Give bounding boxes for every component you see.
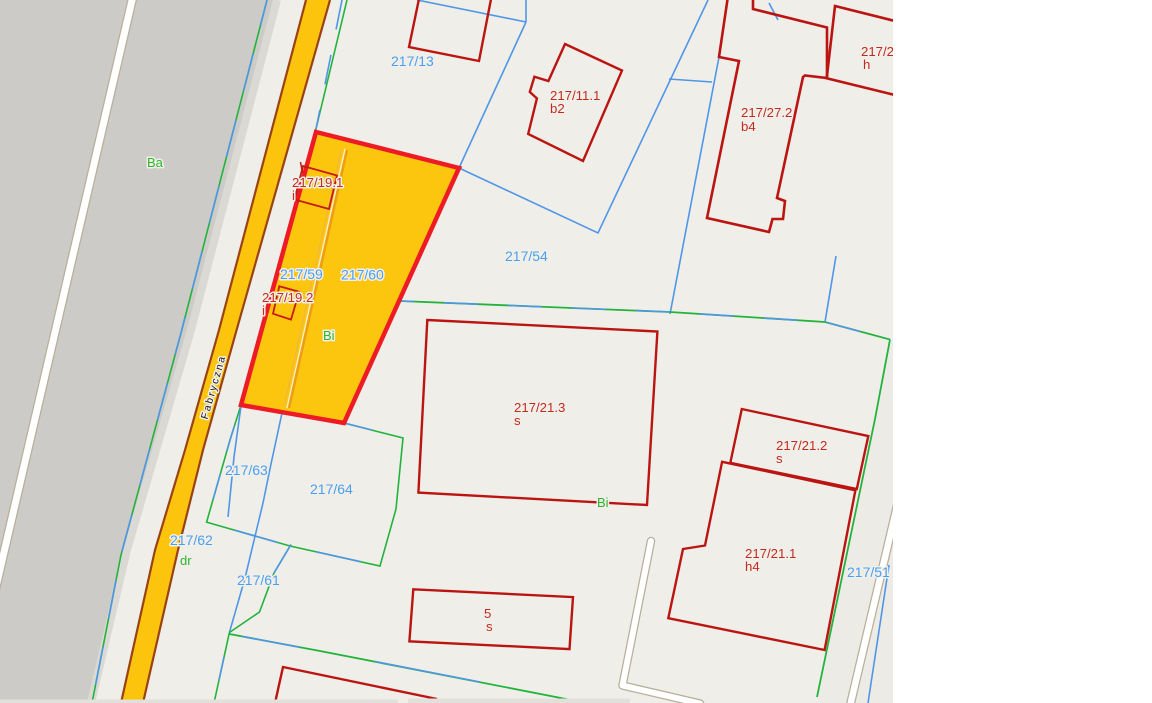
svg-text:s: s xyxy=(486,619,493,634)
svg-text:217/59: 217/59 xyxy=(280,266,323,282)
svg-text:217/19.2: 217/19.2 xyxy=(262,290,313,305)
svg-text:217/60: 217/60 xyxy=(341,267,384,283)
svg-text:b2: b2 xyxy=(550,101,565,116)
svg-text:217/51: 217/51 xyxy=(847,564,890,580)
svg-text:217/13: 217/13 xyxy=(391,53,434,69)
svg-text:217/62: 217/62 xyxy=(170,532,213,548)
svg-text:s: s xyxy=(776,451,783,466)
svg-text:217/19.1: 217/19.1 xyxy=(292,175,343,190)
svg-text:Bi: Bi xyxy=(323,328,335,343)
svg-text:i: i xyxy=(262,303,265,318)
svg-text:217/61: 217/61 xyxy=(237,572,280,588)
svg-text:217/27.2: 217/27.2 xyxy=(741,105,792,120)
svg-text:h4: h4 xyxy=(745,559,760,574)
svg-text:Ba: Ba xyxy=(147,155,164,170)
svg-text:dr: dr xyxy=(180,553,192,568)
svg-text:217/54: 217/54 xyxy=(505,248,548,264)
svg-text:i: i xyxy=(292,188,295,203)
svg-text:s: s xyxy=(514,413,521,428)
svg-text:217/63: 217/63 xyxy=(225,462,268,478)
svg-text:217/64: 217/64 xyxy=(310,481,353,497)
svg-text:b4: b4 xyxy=(741,119,756,134)
svg-text:h: h xyxy=(863,57,870,72)
svg-text:217/21.2: 217/21.2 xyxy=(776,438,827,453)
svg-text:Bi: Bi xyxy=(597,495,609,510)
svg-text:217/21.3: 217/21.3 xyxy=(514,400,565,415)
